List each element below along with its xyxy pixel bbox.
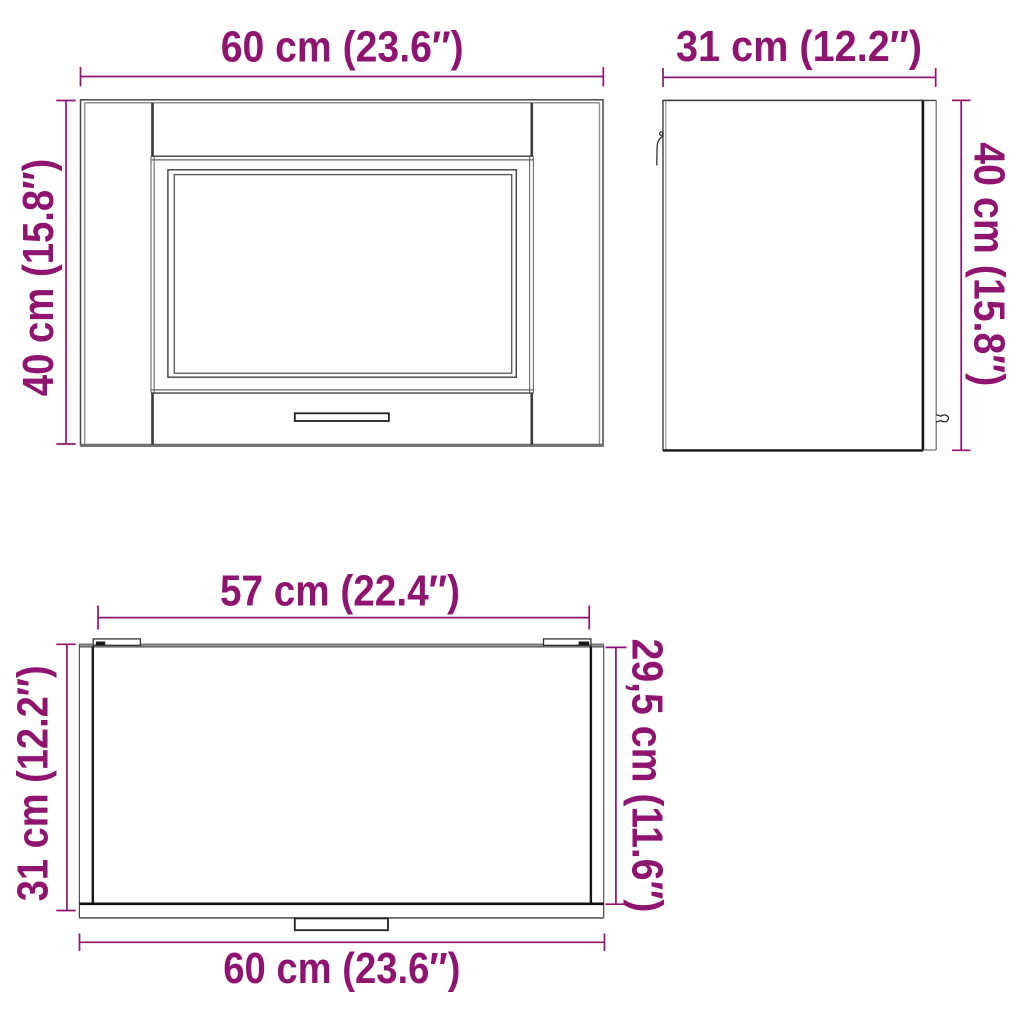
svg-text:31 cm (12.2″): 31 cm (12.2″) <box>8 665 57 901</box>
svg-text:40 cm (15.8″): 40 cm (15.8″) <box>964 142 1013 386</box>
svg-text:40 cm (15.8″): 40 cm (15.8″) <box>14 159 63 397</box>
svg-text:60 cm (23.6″): 60 cm (23.6″) <box>223 944 460 993</box>
svg-text:60 cm (23.6″): 60 cm (23.6″) <box>221 23 464 72</box>
svg-text:29,5 cm (11.6″): 29,5 cm (11.6″) <box>622 639 671 913</box>
svg-text:31 cm (12.2″): 31 cm (12.2″) <box>676 22 922 71</box>
svg-text:57 cm (22.4″): 57 cm (22.4″) <box>220 566 460 615</box>
